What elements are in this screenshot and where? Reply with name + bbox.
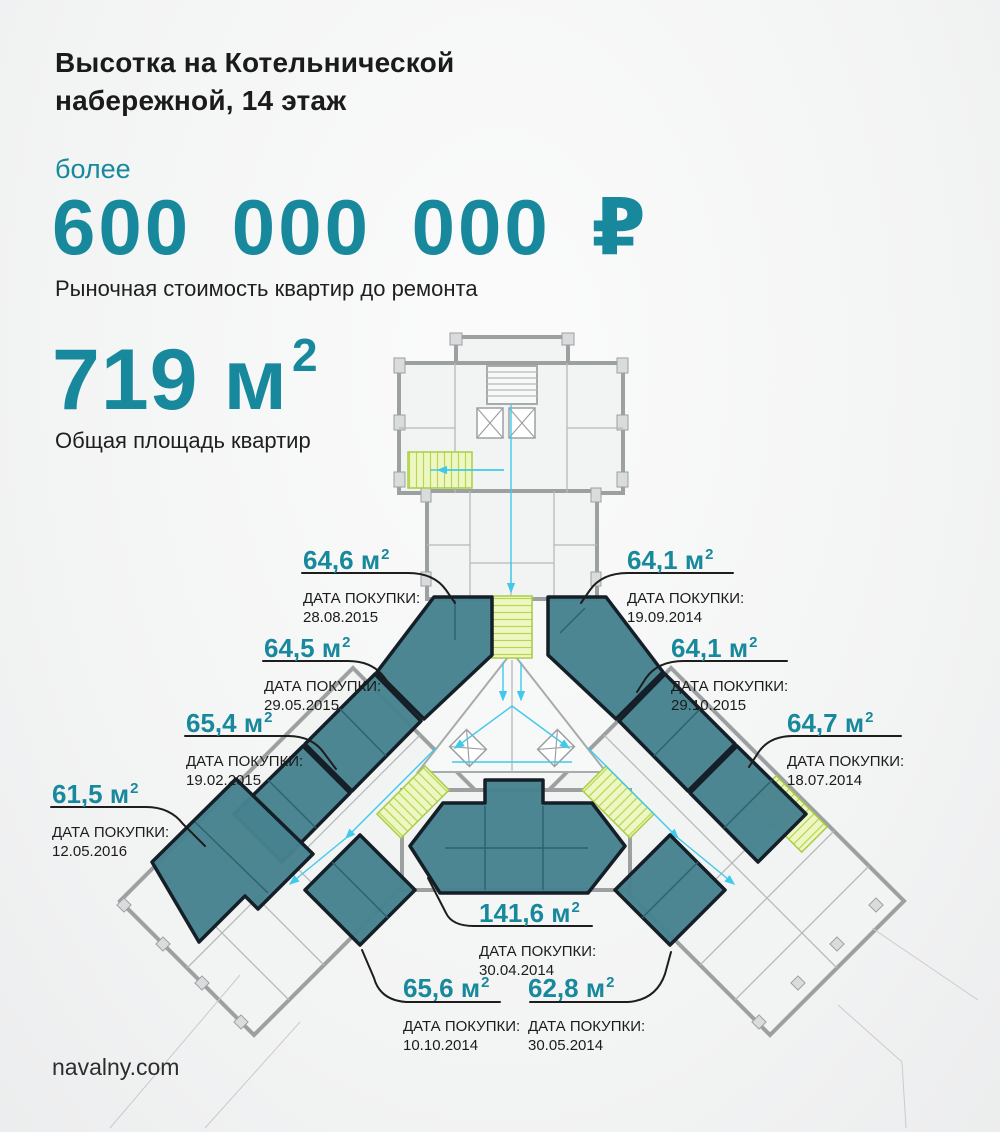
- apartment-label-64-1b: 64,1 м2 ДАТА ПОКУПКИ:29.10.2015: [671, 628, 841, 715]
- apartment-area: 64,1 м2: [627, 540, 797, 575]
- price-caption: Рыночная стоимость квартир до ремонта: [55, 276, 478, 302]
- purchase-date: 18.07.2014: [787, 771, 957, 790]
- apartment-area: 65,4 м2: [186, 703, 356, 738]
- total-area-value: 719 м2: [52, 328, 319, 430]
- purchase-date: 30.05.2014: [528, 1036, 698, 1055]
- apartment-label-64-1a: 64,1 м2 ДАТА ПОКУПКИ:19.09.2014: [627, 540, 797, 627]
- apartment-label-141-6: 141,6 м2 ДАТА ПОКУПКИ:30.04.2014: [479, 893, 649, 980]
- purchase-caption: ДАТА ПОКУПКИ:: [52, 823, 222, 842]
- apartment-label-64-7: 64,7 м2 ДАТА ПОКУПКИ:18.07.2014: [787, 703, 957, 790]
- purchase-date: 19.09.2014: [627, 608, 797, 627]
- purchase-caption: ДАТА ПОКУПКИ:: [627, 589, 797, 608]
- apartment-area: 61,5 м2: [52, 774, 222, 809]
- apartment-area: 141,6 м2: [479, 893, 649, 928]
- price-value: 600 000 000 ₽: [52, 182, 649, 273]
- page-title-line2: набережной, 14 этаж: [55, 82, 454, 120]
- purchase-caption: ДАТА ПОКУПКИ:: [303, 589, 473, 608]
- purchase-caption: ДАТА ПОКУПКИ:: [186, 752, 356, 771]
- purchase-caption: ДАТА ПОКУПКИ:: [787, 752, 957, 771]
- price-prefix: более: [55, 154, 131, 185]
- page-title-line1: Высотка на Котельнической: [55, 44, 454, 82]
- purchase-date: 28.08.2015: [303, 608, 473, 627]
- purchase-caption: ДАТА ПОКУПКИ:: [479, 942, 649, 961]
- page-title: Высотка на Котельнической набережной, 14…: [55, 44, 454, 120]
- page: { "colors": { "accent": "#18899d", "apar…: [0, 0, 1000, 1132]
- apartment-area: 62,8 м2: [528, 968, 698, 1003]
- apartment-label-64-5: 64,5 м2 ДАТА ПОКУПКИ:29.05.2015: [264, 628, 434, 715]
- apartment-label-61-5: 61,5 м2 ДАТА ПОКУПКИ:12.05.2016: [52, 774, 222, 861]
- purchase-caption: ДАТА ПОКУПКИ:: [528, 1017, 698, 1036]
- apartment-area: 64,7 м2: [787, 703, 957, 738]
- apartment-area: 64,1 м2: [671, 628, 841, 663]
- apartment-area: 64,6 м2: [303, 540, 473, 575]
- apartment-label-64-6: 64,6 м2 ДАТА ПОКУПКИ:28.08.2015: [303, 540, 473, 627]
- site-link[interactable]: navalny.com: [52, 1054, 179, 1081]
- apartment-label-62-8: 62,8 м2 ДАТА ПОКУПКИ:30.05.2014: [528, 968, 698, 1055]
- purchase-date: 12.05.2016: [52, 842, 222, 861]
- apartment-area: 64,5 м2: [264, 628, 434, 663]
- total-area-caption: Общая площадь квартир: [55, 428, 311, 454]
- total-area-sup: 2: [292, 329, 319, 381]
- total-area-number: 719 м: [52, 332, 288, 428]
- purchase-caption: ДАТА ПОКУПКИ:: [264, 677, 434, 696]
- purchase-caption: ДАТА ПОКУПКИ:: [671, 677, 841, 696]
